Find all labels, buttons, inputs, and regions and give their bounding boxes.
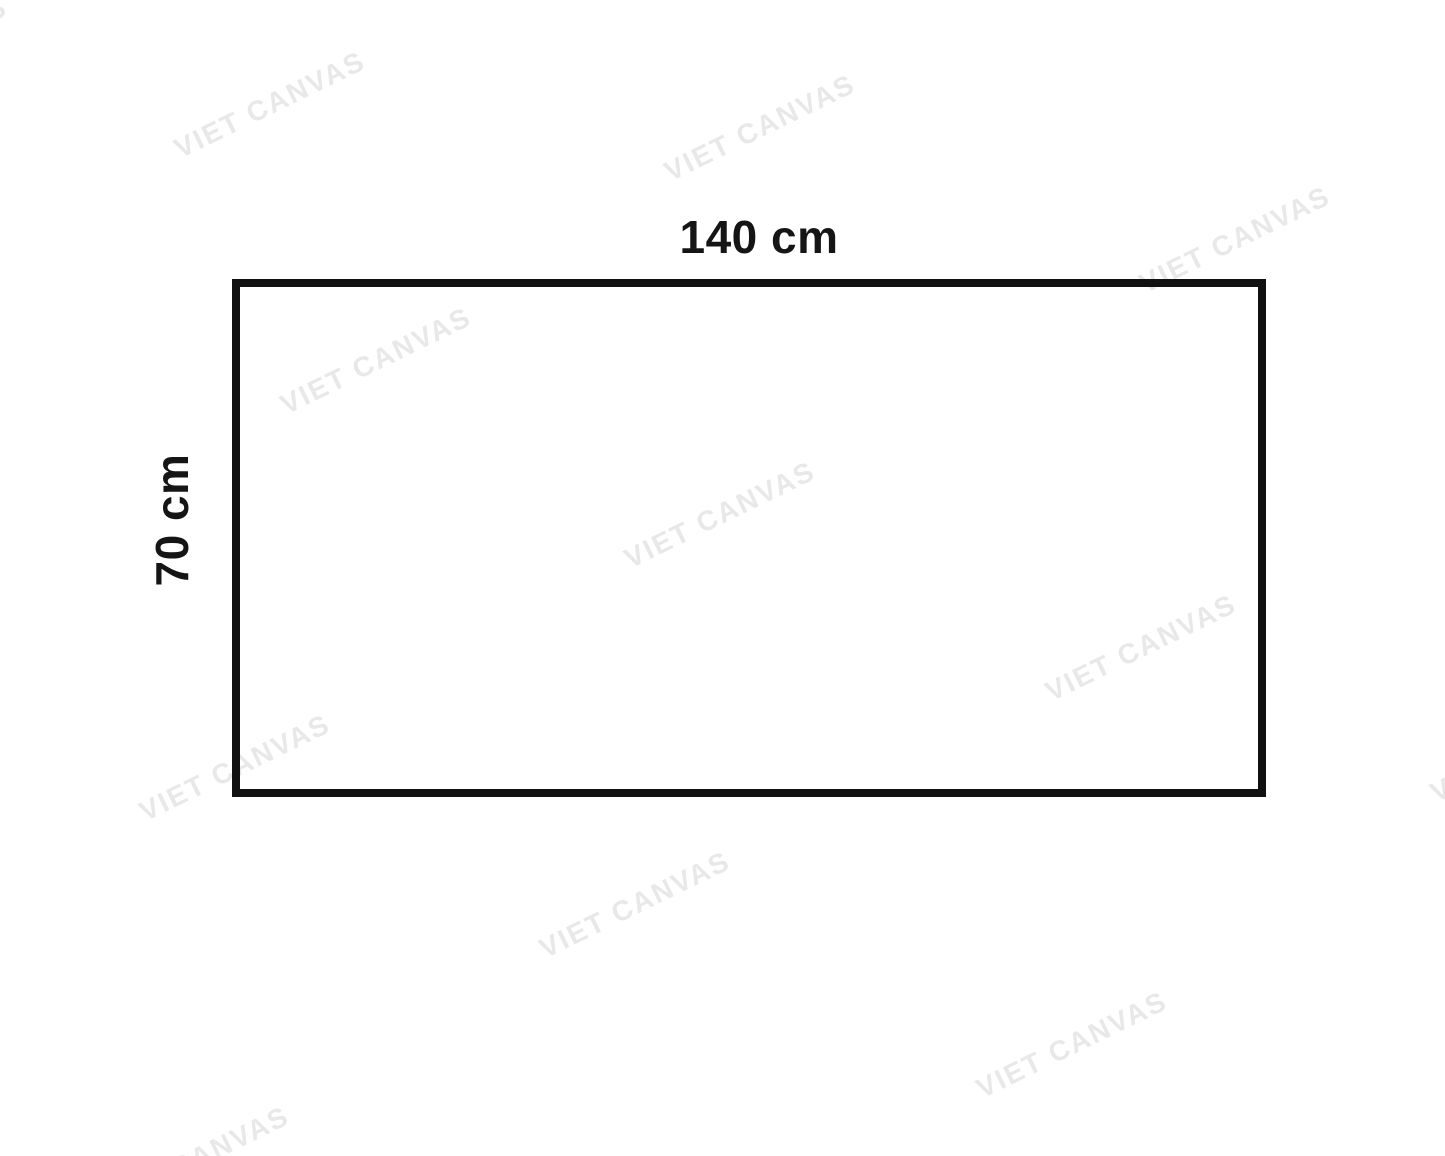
watermark-text: VIET CANVAS [93, 1100, 294, 1156]
watermark-text: VIET CANVAS [0, 0, 13, 111]
height-dimension-label: 70 cm [145, 454, 199, 587]
watermark-text: VIET CANVAS [971, 985, 1172, 1105]
watermark-text: VIET CANVAS [534, 845, 735, 965]
canvas-size-diagram: VIET CANVASVIET CANVASVIET CANVASVIET CA… [0, 0, 1445, 1156]
watermark-text: VIET CANVAS [1425, 689, 1445, 809]
width-dimension-label: 140 cm [679, 210, 838, 264]
watermark-text: VIET CANVAS [659, 68, 860, 188]
canvas-rectangle [232, 279, 1266, 797]
watermark-text: VIET CANVAS [169, 45, 370, 165]
